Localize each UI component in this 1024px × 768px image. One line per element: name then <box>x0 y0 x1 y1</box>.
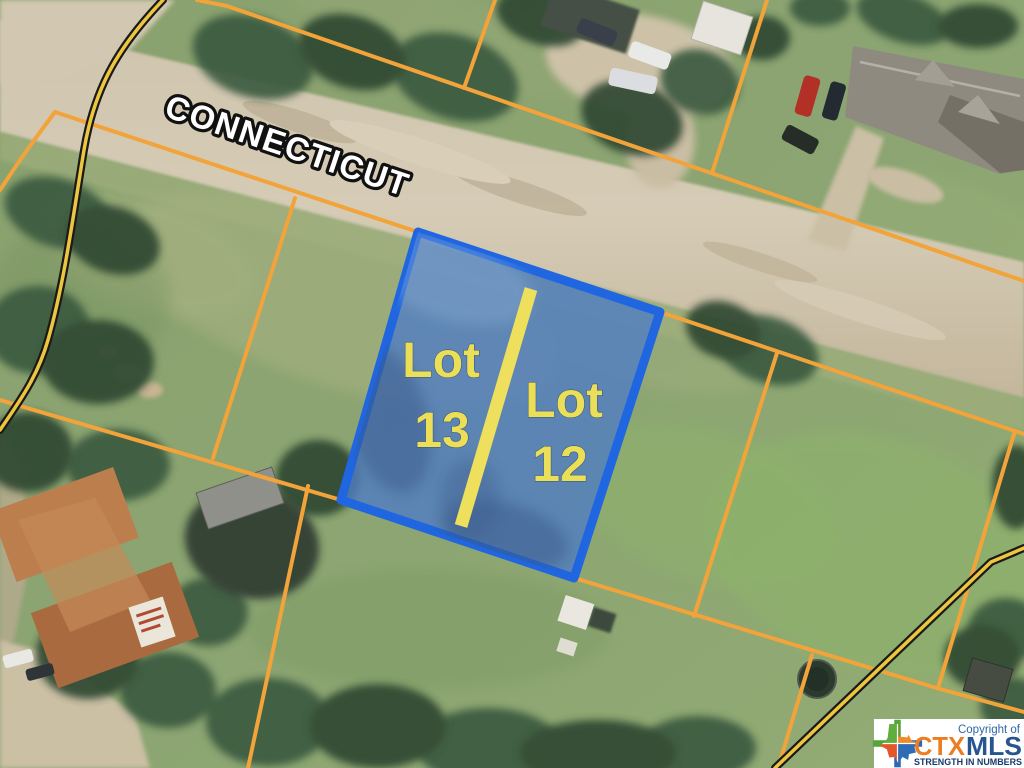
mls-aerial-map-image: Lot 13 Lot 12 CONNECTICUT Copyright of <box>0 0 1024 768</box>
aerial-map: Lot 13 Lot 12 CONNECTICUT Copyright of <box>0 0 1024 768</box>
svg-text:Lot: Lot <box>525 372 603 428</box>
logo-tagline: STRENGTH IN NUMBERS <box>914 757 1022 768</box>
svg-text:13: 13 <box>414 402 470 458</box>
ctxmls-logo: Copyright of CTX MLS STRENGTH IN NUMBERS <box>873 719 1024 768</box>
svg-text:12: 12 <box>532 436 588 492</box>
svg-text:Lot: Lot <box>402 332 480 388</box>
